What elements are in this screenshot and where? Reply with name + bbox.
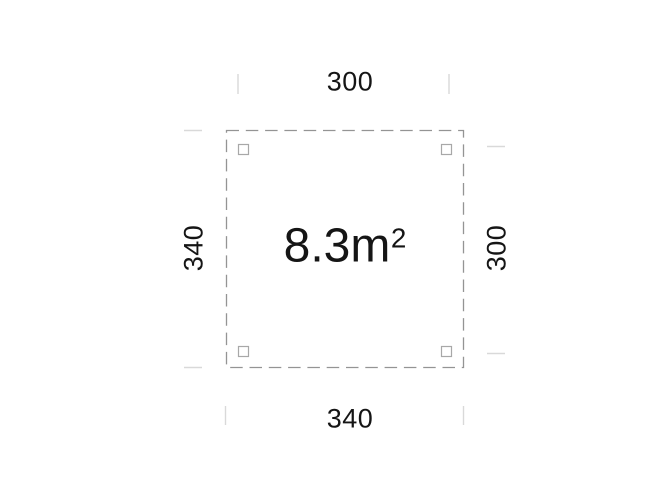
- dimension-label-top: 300: [327, 67, 374, 98]
- area-value: 8.3m: [284, 220, 391, 273]
- dimension-label-bottom: 340: [327, 404, 374, 435]
- dimension-label-right: 300: [482, 225, 513, 272]
- corner-post-bottom-right: [442, 347, 452, 357]
- area-label: 8.3m2: [284, 219, 407, 274]
- corner-post-top-left: [239, 145, 249, 155]
- dimension-label-left: 340: [179, 225, 210, 272]
- corner-post-bottom-left: [239, 347, 249, 357]
- area-superscript: 2: [391, 222, 406, 253]
- corner-post-top-right: [442, 145, 452, 155]
- floor-plan-diagram: 300 340 340 300 8.3m2: [0, 0, 667, 500]
